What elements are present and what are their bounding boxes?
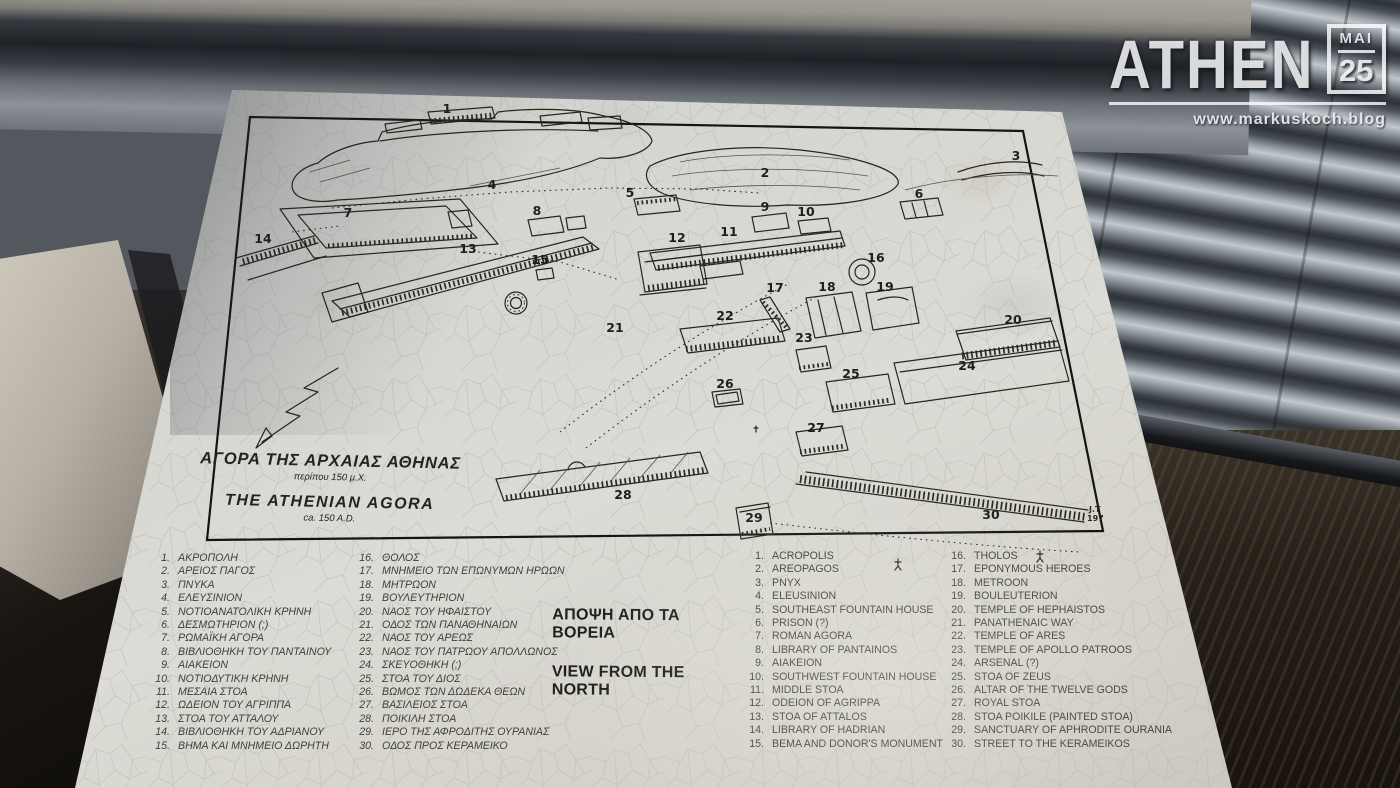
legend-row-label: ΠΟΙΚΙΛΗ ΣΤΟΑ bbox=[382, 713, 456, 726]
legend-row: 9.ΑΙΑΚΕΙΟΝ bbox=[146, 659, 346, 672]
legend-row: 3.ΠΝΥΚΑ bbox=[146, 579, 346, 592]
legend-row: 5.SOUTHEAST FOUNTAIN HOUSE bbox=[740, 604, 940, 617]
legend-row-number: 21. bbox=[350, 619, 374, 632]
map-signature-line1: J.T bbox=[1088, 505, 1101, 514]
legend-row-label: ALTAR OF THE TWELVE GODS bbox=[974, 684, 1128, 697]
legend-row-label: ΡΩΜΑΪΚΗ ΑΓΟΡΑ bbox=[178, 632, 264, 645]
legend-row-number: 20. bbox=[350, 606, 374, 619]
legend-english-col2: 16.THOLOS17.EPONYMOUS HEROES18.METROON19… bbox=[942, 550, 1157, 751]
legend-row-label: STOA POIKILE (PAINTED STOA) bbox=[974, 711, 1133, 724]
legend-row: 16.THOLOS bbox=[942, 550, 1157, 563]
legend-row-label: LIBRARY OF PANTAINOS bbox=[772, 644, 897, 657]
map-marker-9: 9 bbox=[761, 199, 770, 214]
map-marker-28: 28 bbox=[614, 487, 631, 502]
legend-row-label: STOA OF ATTALOS bbox=[772, 711, 867, 724]
map-marker-29: 29 bbox=[745, 510, 762, 525]
watermark-row: ATHEN MAI 25 bbox=[1109, 24, 1386, 105]
legend-row-label: ΒΑΣΙΛΕΙΟΣ ΣΤΟΑ bbox=[382, 699, 468, 712]
map-marker-8: 8 bbox=[533, 203, 542, 218]
legend-row-number: 9. bbox=[146, 659, 170, 672]
map-marker-22: 22 bbox=[716, 308, 733, 323]
legend-row-label: ΝΑΟΣ ΤΟΥ ΑΡΕΩΣ bbox=[382, 632, 473, 645]
legend-row-label: LIBRARY OF HADRIAN bbox=[772, 724, 885, 737]
map-marker-20: 20 bbox=[1004, 312, 1022, 327]
legend-row: 26.ALTAR OF THE TWELVE GODS bbox=[942, 684, 1157, 697]
view-caption-english: VIEW FROM THE NORTH bbox=[552, 663, 747, 700]
legend-row-label: ΒΟΥΛΕΥΤΗΡΙΟΝ bbox=[382, 592, 464, 605]
legend-row-label: PRISON (?) bbox=[772, 617, 829, 630]
legend-row: 1.ACROPOLIS bbox=[740, 550, 940, 563]
legend-row-label: PNYX bbox=[772, 577, 801, 590]
map-marker-10: 10 bbox=[797, 204, 815, 219]
legend-row-number: 25. bbox=[942, 671, 966, 684]
legend-row-number: 3. bbox=[146, 579, 170, 592]
legend-row: 8.LIBRARY OF PANTAINOS bbox=[740, 644, 940, 657]
map-marker-15: 15 bbox=[531, 252, 548, 267]
legend-row-number: 19. bbox=[942, 590, 966, 603]
legend-row-number: 27. bbox=[350, 699, 374, 712]
legend-row-number: 21. bbox=[942, 617, 966, 630]
legend-row: 20.TEMPLE OF HEPHAISTOS bbox=[942, 604, 1157, 617]
legend-row-label: ΙΕΡΟ ΤΗΣ ΑΦΡΟΔΙΤΗΣ ΟΥΡΑΝΙΑΣ bbox=[382, 726, 549, 739]
legend-row: 14.LIBRARY OF HADRIAN bbox=[740, 724, 940, 737]
legend-row-label: ΣΚΕΥΟΘΗΚΗ (;) bbox=[382, 659, 461, 672]
legend-row-label: STREET TO THE KERAMEIKOS bbox=[974, 738, 1130, 751]
legend-row-number: 22. bbox=[942, 630, 966, 643]
legend-row: 23.TEMPLE OF APOLLO PATROOS bbox=[942, 644, 1157, 657]
legend-row-label: ΩΔΕΙΟΝ ΤΟΥ ΑΓΡΙΠΠΑ bbox=[178, 699, 291, 712]
watermark-day: 25 bbox=[1338, 53, 1376, 88]
legend-row: 28.STOA POIKILE (PAINTED STOA) bbox=[942, 711, 1157, 724]
legend-row-label: ΟΔΟΣ ΠΡΟΣ ΚΕΡΑΜΕΙΚΟ bbox=[382, 740, 508, 753]
legend-row-number: 10. bbox=[146, 673, 170, 686]
legend-row-label: ΝΑΟΣ ΤΟΥ ΠΑΤΡΩΟΥ ΑΠΟΛΛΩΝΟΣ bbox=[382, 646, 558, 659]
legend-row-label: BEMA AND DONOR'S MONUMENT bbox=[772, 738, 943, 751]
legend-row-label: BOULEUTERION bbox=[974, 590, 1058, 603]
legend-row: 16.ΘΟΛΟΣ bbox=[350, 552, 560, 565]
map-marker-11: 11 bbox=[720, 224, 737, 239]
legend-row-number: 18. bbox=[350, 579, 374, 592]
legend-row-number: 28. bbox=[942, 711, 966, 724]
legend-row: 27.ΒΑΣΙΛΕΙΟΣ ΣΤΟΑ bbox=[350, 699, 560, 712]
legend-row-number: 18. bbox=[942, 577, 966, 590]
legend-row: 20.ΝΑΟΣ ΤΟΥ ΗΦΑΙΣΤΟΥ bbox=[350, 606, 560, 619]
legend-row-number: 2. bbox=[740, 563, 764, 576]
map-marker-4: 4 bbox=[488, 177, 497, 192]
map-marker-7: 7 bbox=[344, 205, 353, 220]
legend-row: 26.ΒΩΜΟΣ ΤΩΝ ΔΩΔΕΚΑ ΘΕΩΝ bbox=[350, 686, 560, 699]
legend-row: 22.ΝΑΟΣ ΤΟΥ ΑΡΕΩΣ bbox=[350, 632, 560, 645]
legend-row: 21.PANATHENAIC WAY bbox=[942, 617, 1157, 630]
legend-row-number: 14. bbox=[740, 724, 764, 737]
legend-row-label: ΜΗΤΡΩΟΝ bbox=[382, 579, 436, 592]
map-marker-21: 21 bbox=[606, 320, 623, 335]
map-marker-19: 19 bbox=[876, 279, 893, 294]
legend-row: 17.ΜΝΗΜΕΙΟ ΤΩΝ ΕΠΩΝΥΜΩΝ ΗΡΩΩΝ bbox=[350, 565, 560, 578]
legend-row: 10.ΝΟΤΙΟΔΥΤΙΚΗ ΚΡΗΝΗ bbox=[146, 673, 346, 686]
legend-row-number: 3. bbox=[740, 577, 764, 590]
map-signature-line2: 197 bbox=[1087, 514, 1104, 523]
watermark-site-url: www.markuskoch.blog bbox=[1109, 111, 1386, 129]
legend-row: 15.ΒΗΜΑ ΚΑΙ ΜΝΗΜΕΙΟ ΔΩΡΗΤΗ bbox=[146, 740, 346, 753]
legend-row-number: 20. bbox=[942, 604, 966, 617]
legend-row: 5.ΝΟΤΙΟΑΝΑΤΟΛΙΚΗ ΚΡΗΝΗ bbox=[146, 606, 346, 619]
legend-row-number: 6. bbox=[146, 619, 170, 632]
legend-row-number: 27. bbox=[942, 697, 966, 710]
map-marker-23: 23 bbox=[795, 330, 812, 345]
legend-row-label: PANATHENAIC WAY bbox=[974, 617, 1074, 630]
legend-row: 19.ΒΟΥΛΕΥΤΗΡΙΟΝ bbox=[350, 592, 560, 605]
legend-row-label: TEMPLE OF APOLLO PATROOS bbox=[974, 644, 1132, 657]
map-marker-18: 18 bbox=[818, 279, 835, 294]
legend-row: 4.ELEUSINION bbox=[740, 590, 940, 603]
legend-row-number: 4. bbox=[146, 592, 170, 605]
legend-row: 18.ΜΗΤΡΩΟΝ bbox=[350, 579, 560, 592]
map-marker-13: 13 bbox=[459, 241, 476, 256]
legend-row: 9.AIAKEION bbox=[740, 657, 940, 670]
legend-row-label: ELEUSINION bbox=[772, 590, 836, 603]
legend-row-label: ΑΙΑΚΕΙΟΝ bbox=[178, 659, 228, 672]
legend-row-number: 23. bbox=[350, 646, 374, 659]
legend-row: 4.ΕΛΕΥΣΙΝΙΟΝ bbox=[146, 592, 346, 605]
view-caption-greek: ΑΠΟΨΗ ΑΠΟ ΤΑ ΒΟΡΕΙΑ bbox=[552, 606, 747, 643]
legend-row-label: ΝΟΤΙΟΔΥΤΙΚΗ ΚΡΗΝΗ bbox=[178, 673, 288, 686]
legend-row-number: 11. bbox=[146, 686, 170, 699]
legend-row-label: TEMPLE OF HEPHAISTOS bbox=[974, 604, 1105, 617]
legend-row-label: THOLOS bbox=[974, 550, 1018, 563]
legend-row-label: AIAKEION bbox=[772, 657, 822, 670]
watermark-title: ATHEN bbox=[1109, 37, 1314, 93]
legend-greek-col1: 1.ΑΚΡΟΠΟΛΗ2.ΑΡΕΙΟΣ ΠΑΓΟΣ3.ΠΝΥΚΑ4.ΕΛΕΥΣΙΝ… bbox=[146, 552, 346, 753]
legend-row-number: 28. bbox=[350, 713, 374, 726]
legend-row-label: ΒΙΒΛΙΟΘΗΚΗ ΤΟΥ ΑΔΡΙΑΝΟΥ bbox=[178, 726, 324, 739]
terrain-hatching bbox=[310, 155, 1058, 494]
legend-row-label: ΝΑΟΣ ΤΟΥ ΗΦΑΙΣΤΟΥ bbox=[382, 606, 491, 619]
map-title-block: ΑΓΟΡΑ ΤΗΣ ΑΡΧΑΙΑΣ ΑΘΗΝΑΣ περίπου 150 μ.Χ… bbox=[184, 449, 475, 527]
legend-row-label: ΕΛΕΥΣΙΝΙΟΝ bbox=[178, 592, 242, 605]
legend-row: 28.ΠΟΙΚΙΛΗ ΣΤΟΑ bbox=[350, 713, 560, 726]
legend-row-number: 15. bbox=[740, 738, 764, 751]
legend-row: 7.ROMAN AGORA bbox=[740, 630, 940, 643]
map-marker-3: 3 bbox=[1012, 148, 1021, 163]
legend-row-label: ΒΙΒΛΙΟΘΗΚΗ ΤΟΥ ΠΑΝΤΑΙΝΟΥ bbox=[178, 646, 331, 659]
legend-row: 8.ΒΙΒΛΙΟΘΗΚΗ ΤΟΥ ΠΑΝΤΑΙΝΟΥ bbox=[146, 646, 346, 659]
legend-row-number: 26. bbox=[350, 686, 374, 699]
photo-of-agora-information-sign: 1234567891011121314151617181920212223242… bbox=[0, 0, 1400, 788]
legend-row-label: MIDDLE STOA bbox=[772, 684, 844, 697]
legend-row-number: 19. bbox=[350, 592, 374, 605]
map-marker-1: 1 bbox=[443, 101, 452, 116]
legend-row: 29.ΙΕΡΟ ΤΗΣ ΑΦΡΟΔΙΤΗΣ ΟΥΡΑΝΙΑΣ bbox=[350, 726, 560, 739]
legend-english-col1: 1.ACROPOLIS2.AREOPAGOS3.PNYX4.ELEUSINION… bbox=[740, 550, 940, 751]
map-marker-14: 14 bbox=[254, 231, 272, 246]
legend-row: 6.PRISON (?) bbox=[740, 617, 940, 630]
legend-row: 24.ΣΚΕΥΟΘΗΚΗ (;) bbox=[350, 659, 560, 672]
legend-row-number: 4. bbox=[740, 590, 764, 603]
legend-row-number: 15. bbox=[146, 740, 170, 753]
legend-row: 13.ΣΤΟΑ ΤΟΥ ΑΤΤΑΛΟΥ bbox=[146, 713, 346, 726]
watermark-date-box: MAI 25 bbox=[1327, 24, 1387, 94]
legend-row-label: ΣΤΟΑ ΤΟΥ ΔΙΟΣ bbox=[382, 673, 461, 686]
legend-row: 10.SOUTHWEST FOUNTAIN HOUSE bbox=[740, 671, 940, 684]
legend-row: 19.BOULEUTERION bbox=[942, 590, 1157, 603]
legend-row-number: 22. bbox=[350, 632, 374, 645]
legend-row: 27.ROYAL STOA bbox=[942, 697, 1157, 710]
legend-greek-col2: 16.ΘΟΛΟΣ17.ΜΝΗΜΕΙΟ ΤΩΝ ΕΠΩΝΥΜΩΝ ΗΡΩΩΝ18.… bbox=[350, 552, 560, 753]
view-caption: ΑΠΟΨΗ ΑΠΟ ΤΑ ΒΟΡΕΙΑ VIEW FROM THE NORTH bbox=[552, 606, 748, 700]
legend-row-label: AREOPAGOS bbox=[772, 563, 839, 576]
legend-row: 29.SANCTUARY OF APHRODITE OURANIA bbox=[942, 724, 1157, 737]
legend-row-number: 29. bbox=[942, 724, 966, 737]
legend-row-label: ROMAN AGORA bbox=[772, 630, 852, 643]
legend-row-label: ΝΟΤΙΟΑΝΑΤΟΛΙΚΗ ΚΡΗΝΗ bbox=[178, 606, 311, 619]
legend-row: 30.ΟΔΟΣ ΠΡΟΣ ΚΕΡΑΜΕΙΚΟ bbox=[350, 740, 560, 753]
legend-row-number: 24. bbox=[350, 659, 374, 672]
map-marker-12: 12 bbox=[668, 230, 685, 245]
legend-row-number: 29. bbox=[350, 726, 374, 739]
legend-row-label: ΜΝΗΜΕΙΟ ΤΩΝ ΕΠΩΝΥΜΩΝ ΗΡΩΩΝ bbox=[382, 565, 565, 578]
legend-row-label: METROON bbox=[974, 577, 1028, 590]
legend-row-number: 1. bbox=[146, 552, 170, 565]
legend-row-label: ΜΕΣΑΙΑ ΣΤΟΑ bbox=[178, 686, 248, 699]
map-marker-30: 30 bbox=[982, 507, 1000, 522]
legend-row-number: 12. bbox=[146, 699, 170, 712]
legend-row-label: ΣΤΟΑ ΤΟΥ ΑΤΤΑΛΟΥ bbox=[178, 713, 278, 726]
legend-row: 2.AREOPAGOS bbox=[740, 563, 940, 576]
legend-row-number: 25. bbox=[350, 673, 374, 686]
legend-row-label: EPONYMOUS HEROES bbox=[974, 563, 1091, 576]
legend-row-number: 24. bbox=[942, 657, 966, 670]
legend-row-label: SANCTUARY OF APHRODITE OURANIA bbox=[974, 724, 1172, 737]
legend-row-label: SOUTHEAST FOUNTAIN HOUSE bbox=[772, 604, 933, 617]
legend-row-label: ΑΚΡΟΠΟΛΗ bbox=[178, 552, 238, 565]
legend-row: 24.ARSENAL (?) bbox=[942, 657, 1157, 670]
legend-row-label: STOA OF ZEUS bbox=[974, 671, 1051, 684]
legend-row-label: ΠΝΥΚΑ bbox=[178, 579, 215, 592]
legend-row-label: ΟΔΟΣ ΤΩΝ ΠΑΝΑΘΗΝΑΙΩΝ bbox=[382, 619, 517, 632]
map-marker-26: 26 bbox=[716, 376, 734, 391]
legend-row: 22.TEMPLE OF ARES bbox=[942, 630, 1157, 643]
legend-row: 6.ΔΕΣΜΩΤΗΡΙΟΝ (;) bbox=[146, 619, 346, 632]
legend-row: 18.METROON bbox=[942, 577, 1157, 590]
legend-row-label: ROYAL STOA bbox=[974, 697, 1040, 710]
legend-row-number: 17. bbox=[942, 563, 966, 576]
legend-row: 12.ΩΔΕΙΟΝ ΤΟΥ ΑΓΡΙΠΠΑ bbox=[146, 699, 346, 712]
legend-row-number: 16. bbox=[350, 552, 374, 565]
map-marker-2: 2 bbox=[761, 165, 770, 180]
legend-row-number: 30. bbox=[350, 740, 374, 753]
legend-row-label: ACROPOLIS bbox=[772, 550, 834, 563]
legend-row-number: 7. bbox=[146, 632, 170, 645]
legend-row-number: 17. bbox=[350, 565, 374, 578]
legend-row-number: 14. bbox=[146, 726, 170, 739]
legend-row-label: ΒΗΜΑ ΚΑΙ ΜΝΗΜΕΙΟ ΔΩΡΗΤΗ bbox=[178, 740, 329, 753]
legend-row-label: ΔΕΣΜΩΤΗΡΙΟΝ (;) bbox=[178, 619, 268, 632]
legend-row-number: 8. bbox=[146, 646, 170, 659]
legend-row: 15.BEMA AND DONOR'S MONUMENT bbox=[740, 738, 940, 751]
legend-row: 21.ΟΔΟΣ ΤΩΝ ΠΑΝΑΘΗΝΑΙΩΝ bbox=[350, 619, 560, 632]
legend-row: 7.ΡΩΜΑΪΚΗ ΑΓΟΡΑ bbox=[146, 632, 346, 645]
legend-row: 23.ΝΑΟΣ ΤΟΥ ΠΑΤΡΩΟΥ ΑΠΟΛΛΩΝΟΣ bbox=[350, 646, 560, 659]
map-marker-25: 25 bbox=[842, 366, 859, 381]
legend-row: 2.ΑΡΕΙΟΣ ΠΑΓΟΣ bbox=[146, 565, 346, 578]
legend-row: 1.ΑΚΡΟΠΟΛΗ bbox=[146, 552, 346, 565]
legend-row: 25.ΣΤΟΑ ΤΟΥ ΔΙΟΣ bbox=[350, 673, 560, 686]
legend-row: 25.STOA OF ZEUS bbox=[942, 671, 1157, 684]
map-marker-6: 6 bbox=[915, 186, 924, 201]
legend-row: 30.STREET TO THE KERAMEIKOS bbox=[942, 738, 1157, 751]
map-marker-24: 24 bbox=[958, 358, 976, 373]
watermark-month: MAI bbox=[1338, 30, 1376, 53]
legend-row-number: 2. bbox=[146, 565, 170, 578]
legend-row-number: 30. bbox=[942, 738, 966, 751]
legend-row-label: ΒΩΜΟΣ ΤΩΝ ΔΩΔΕΚΑ ΘΕΩΝ bbox=[382, 686, 525, 699]
legend-row: 13.STOA OF ATTALOS bbox=[740, 711, 940, 724]
legend-row-label: ODEION OF AGRIPPA bbox=[772, 697, 880, 710]
legend-row-number: 23. bbox=[942, 644, 966, 657]
legend-row-label: ARSENAL (?) bbox=[974, 657, 1039, 670]
legend-row: 12.ODEION OF AGRIPPA bbox=[740, 697, 940, 710]
legend-row-number: 26. bbox=[942, 684, 966, 697]
legend-row-label: SOUTHWEST FOUNTAIN HOUSE bbox=[772, 671, 936, 684]
legend-row: 11.ΜΕΣΑΙΑ ΣΤΟΑ bbox=[146, 686, 346, 699]
map-marker-5: 5 bbox=[626, 185, 635, 200]
legend-row-label: ΑΡΕΙΟΣ ΠΑΓΟΣ bbox=[178, 565, 255, 578]
legend-row: 14.ΒΙΒΛΙΟΘΗΚΗ ΤΟΥ ΑΔΡΙΑΝΟΥ bbox=[146, 726, 346, 739]
legend-row-number: 1. bbox=[740, 550, 764, 563]
watermark: ATHEN MAI 25 www.markuskoch.blog bbox=[1109, 24, 1386, 129]
legend-row-label: TEMPLE OF ARES bbox=[974, 630, 1065, 643]
legend-row-number: 16. bbox=[942, 550, 966, 563]
legend-row-label: ΘΟΛΟΣ bbox=[382, 552, 419, 565]
legend-row: 3.PNYX bbox=[740, 577, 940, 590]
map-marker-27: 27 bbox=[807, 420, 824, 435]
legend-row: 17.EPONYMOUS HEROES bbox=[942, 563, 1157, 576]
map-marker-16: 16 bbox=[867, 250, 885, 265]
map-marker-17: 17 bbox=[766, 280, 783, 295]
legend-row: 11.MIDDLE STOA bbox=[740, 684, 940, 697]
legend-row-number: 13. bbox=[740, 711, 764, 724]
legend-row-number: 13. bbox=[146, 713, 170, 726]
legend-row-number: 5. bbox=[146, 606, 170, 619]
